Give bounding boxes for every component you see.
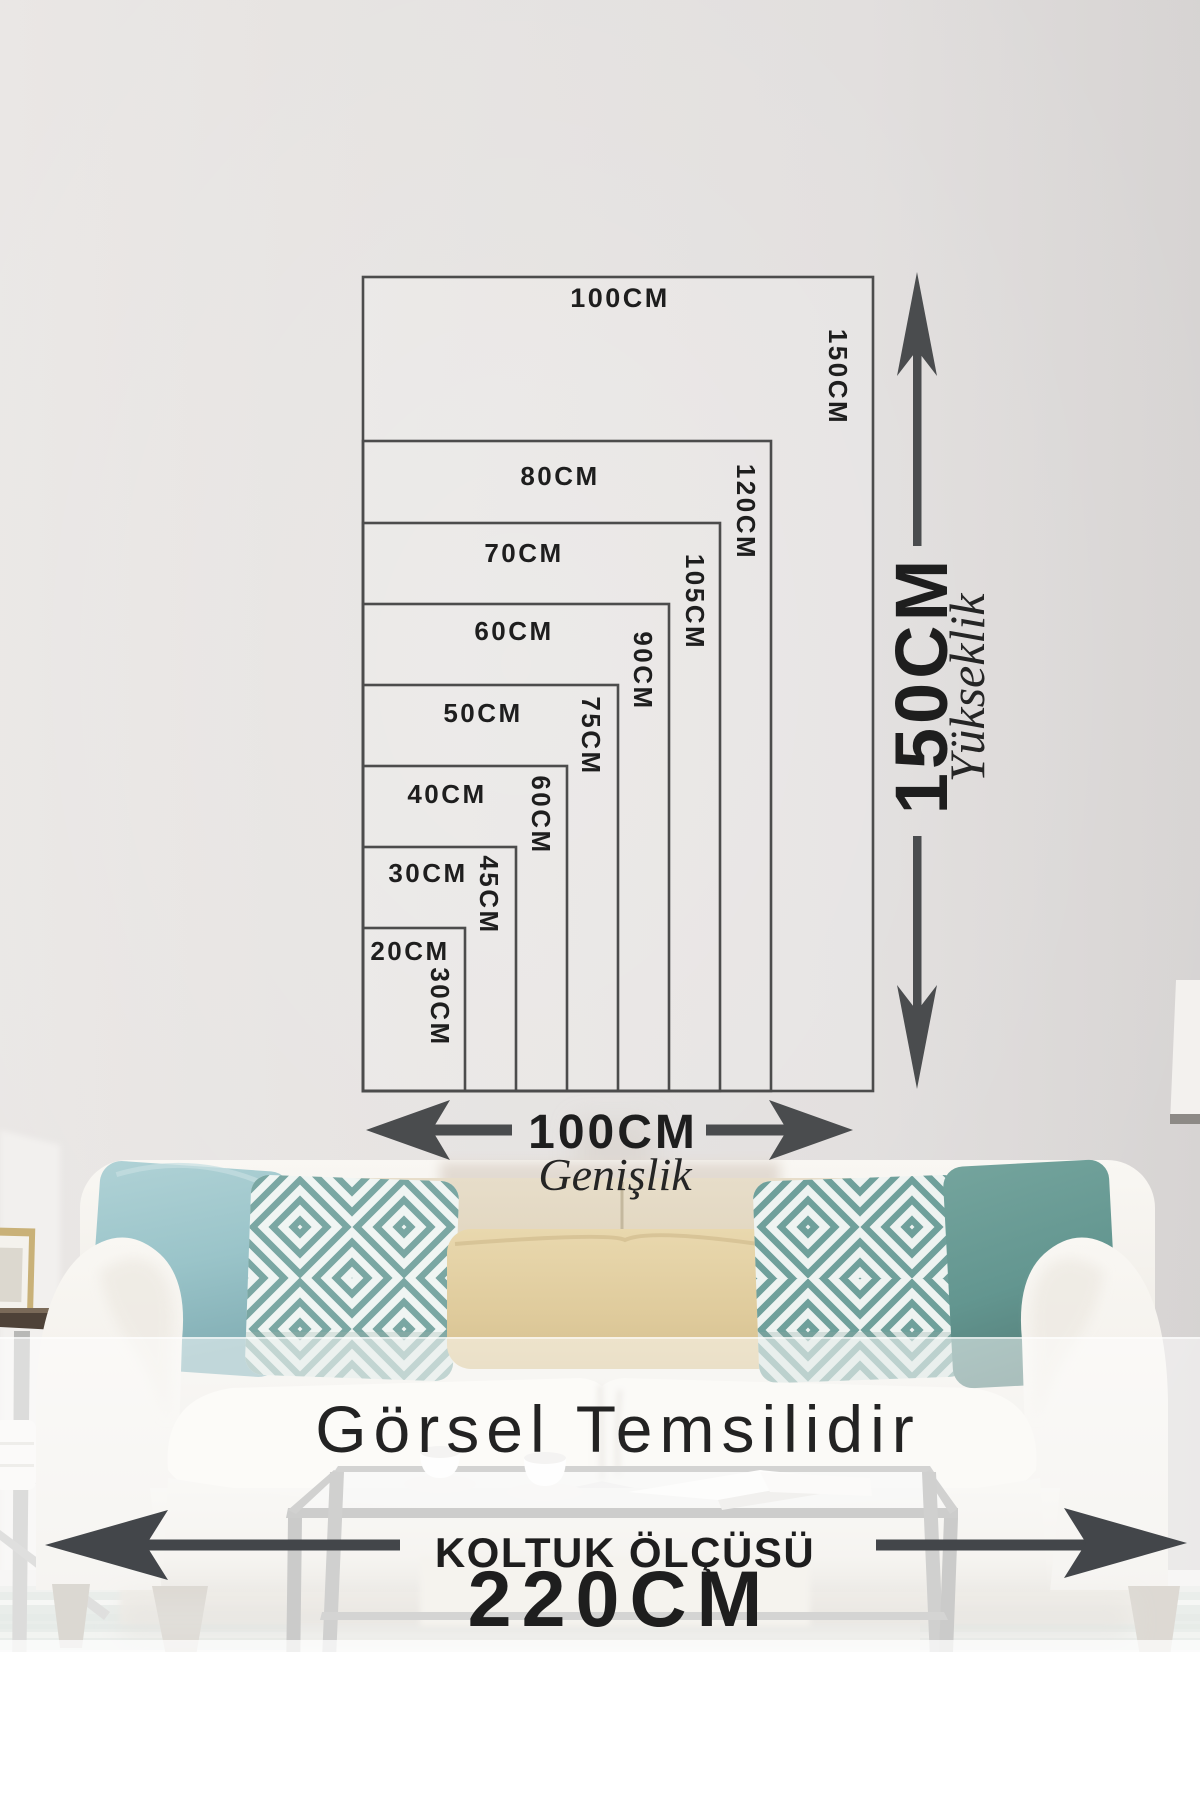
svg-text:75CM: 75CM: [576, 696, 606, 775]
svg-text:60CM: 60CM: [526, 775, 556, 854]
svg-text:Genişlik: Genişlik: [538, 1149, 693, 1200]
svg-text:30CM: 30CM: [425, 967, 455, 1046]
svg-text:220CM: 220CM: [468, 1554, 773, 1643]
svg-text:40CM: 40CM: [407, 779, 486, 809]
svg-text:Yükseklik: Yükseklik: [939, 593, 995, 783]
svg-text:30CM: 30CM: [388, 858, 467, 888]
svg-text:80CM: 80CM: [520, 461, 599, 491]
svg-text:150CM: 150CM: [823, 329, 853, 425]
svg-text:50CM: 50CM: [443, 698, 522, 728]
svg-text:60CM: 60CM: [474, 616, 553, 646]
svg-text:105CM: 105CM: [680, 554, 710, 650]
svg-text:100CM: 100CM: [570, 283, 670, 313]
svg-text:70CM: 70CM: [484, 538, 563, 568]
svg-text:20CM: 20CM: [370, 936, 449, 966]
svg-text:45CM: 45CM: [474, 855, 504, 934]
svg-text:90CM: 90CM: [628, 631, 658, 710]
svg-text:Görsel Temsilidir: Görsel Temsilidir: [315, 1392, 921, 1466]
svg-text:120CM: 120CM: [731, 464, 761, 560]
